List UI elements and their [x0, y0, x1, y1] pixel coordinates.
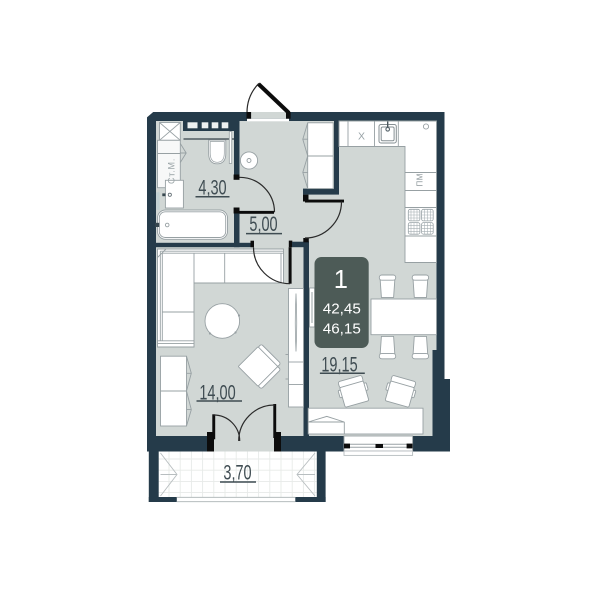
- svg-text:X: X: [358, 130, 365, 142]
- svg-text:46,15: 46,15: [323, 321, 361, 338]
- svg-text:3,70: 3,70: [223, 461, 251, 484]
- svg-text:ПМ: ПМ: [416, 173, 425, 186]
- svg-text:5,00: 5,00: [249, 212, 277, 235]
- svg-text:1: 1: [334, 266, 348, 294]
- svg-text:4,30: 4,30: [198, 176, 226, 199]
- svg-text:42,45: 42,45: [323, 300, 361, 317]
- svg-text:Ст.М.: Ст.М.: [166, 158, 176, 184]
